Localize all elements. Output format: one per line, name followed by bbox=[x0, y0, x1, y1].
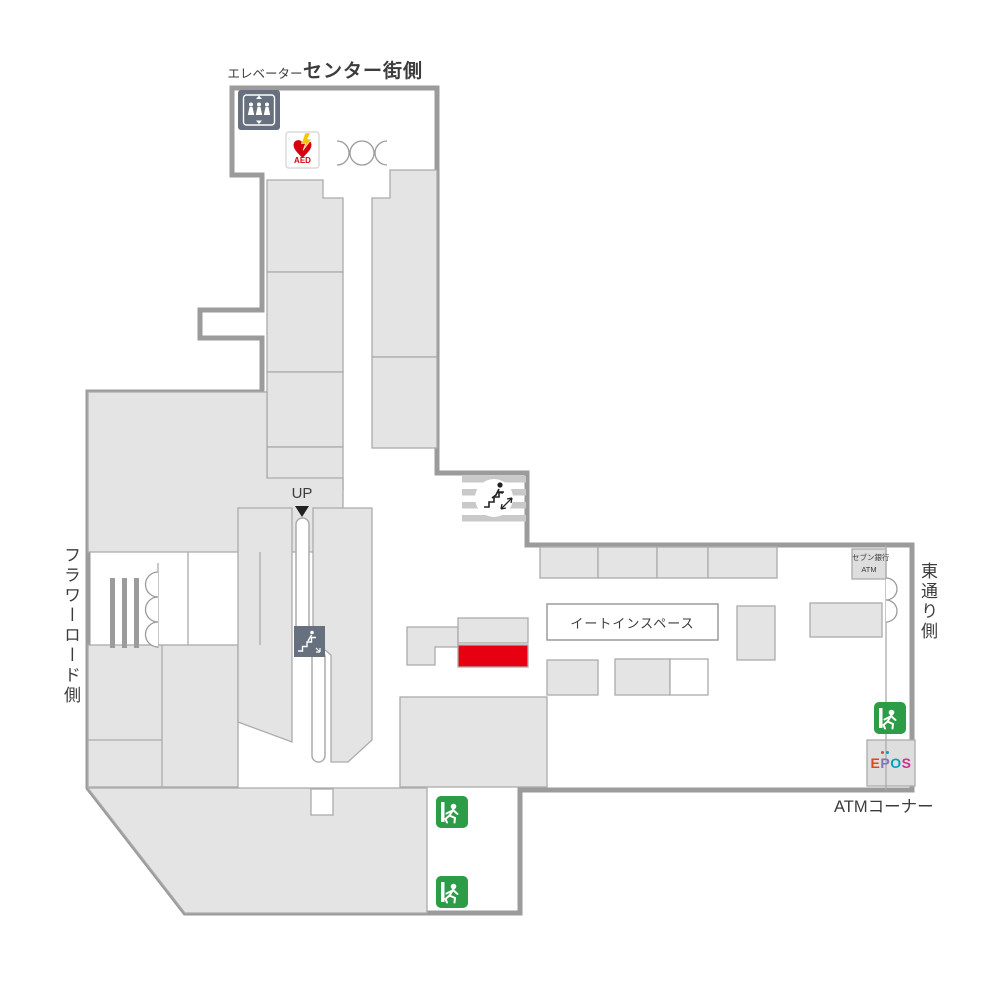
shop-block bbox=[88, 645, 238, 787]
seven-bank-line1: セブン銀行 bbox=[852, 552, 886, 564]
shop-block bbox=[267, 372, 343, 447]
elevator-label: エレベーター bbox=[227, 63, 303, 82]
shop-blocks bbox=[88, 170, 915, 913]
atm-corner-label: ATMコーナー bbox=[834, 793, 934, 817]
door-swing-icon bbox=[886, 578, 897, 600]
stairs-icon bbox=[462, 476, 526, 522]
emergency-exit-icon bbox=[436, 876, 468, 908]
shop-block bbox=[458, 618, 528, 643]
shop-block bbox=[238, 508, 292, 742]
epos-letter: P bbox=[880, 755, 890, 771]
shop-block bbox=[737, 606, 775, 660]
shop-block bbox=[708, 547, 777, 578]
door-swing-icon bbox=[146, 622, 159, 647]
floor-plan-svg bbox=[0, 0, 1000, 1000]
escalator-shaft bbox=[296, 518, 309, 642]
seven-bank-atm-label: セブン銀行 ATM bbox=[852, 552, 886, 576]
up-label: UP bbox=[290, 485, 314, 502]
epos-logo: EPOS bbox=[867, 740, 915, 786]
shop-block bbox=[670, 659, 708, 695]
east-street-side-label: 東通り側 bbox=[915, 562, 940, 642]
epos-umlaut-dots bbox=[881, 751, 889, 754]
shop-block bbox=[372, 357, 437, 448]
step-bar bbox=[110, 578, 115, 648]
center-gai-side-label: センター街側 bbox=[303, 56, 423, 83]
door-swing-icon bbox=[362, 141, 374, 165]
aed-label: AED bbox=[286, 156, 319, 165]
emergency-exit-icon bbox=[436, 796, 468, 828]
highlighted-shop bbox=[458, 645, 528, 667]
shop-block bbox=[88, 788, 427, 913]
floor-notch bbox=[311, 789, 333, 815]
door-swing-icon bbox=[886, 600, 897, 622]
shop-block bbox=[598, 547, 657, 578]
step-bar bbox=[122, 578, 127, 648]
door-swing-icon bbox=[337, 141, 349, 165]
door-swing-icon bbox=[375, 141, 387, 165]
shop-block bbox=[540, 547, 598, 578]
shop-block bbox=[547, 660, 598, 695]
eat-in-space-label: イートインスペース bbox=[547, 604, 718, 640]
epos-letter: E bbox=[871, 755, 881, 771]
entrance-step-bars bbox=[110, 578, 139, 648]
door-swing-icon bbox=[146, 597, 159, 622]
seven-bank-line2: ATM bbox=[852, 564, 886, 576]
emergency-exit-icon bbox=[874, 702, 906, 734]
shop-block bbox=[615, 659, 670, 695]
step-bar bbox=[134, 578, 139, 648]
shop-block bbox=[657, 547, 708, 578]
door-swing-icon bbox=[350, 141, 362, 165]
shop-block bbox=[407, 627, 458, 665]
shop-block bbox=[372, 170, 437, 357]
floor-map: エレベーター センター街側 フラワーロード側 東通り側 UP イートインスペース… bbox=[0, 0, 1000, 1000]
epos-letter: O bbox=[890, 755, 901, 771]
shop-block bbox=[267, 180, 343, 272]
elevator-icon bbox=[238, 90, 280, 130]
shop-block bbox=[267, 272, 343, 372]
epos-letter: S bbox=[902, 755, 912, 771]
shop-block bbox=[810, 603, 882, 637]
escalator-shaft bbox=[312, 650, 325, 762]
door-swing-icon bbox=[146, 572, 159, 597]
escalator-icon bbox=[294, 626, 325, 657]
flower-road-side-label: フラワーロード側 bbox=[58, 546, 83, 706]
shop-block bbox=[400, 697, 547, 787]
